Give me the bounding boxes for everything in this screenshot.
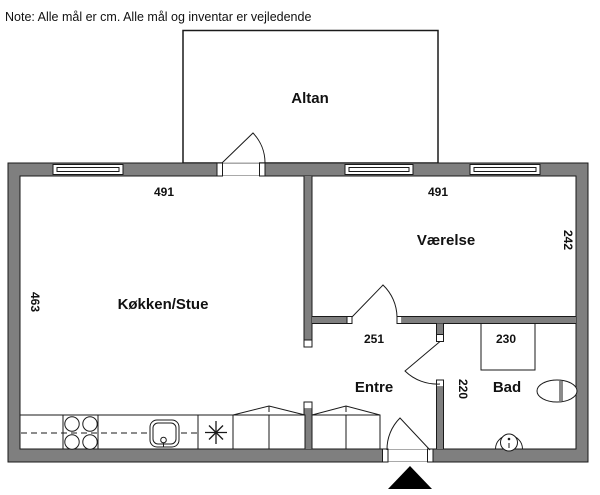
interior-wall-bath <box>437 324 444 450</box>
shower-icon <box>481 324 535 371</box>
entrance-arrow-icon <box>388 466 432 489</box>
interior-wall-horizontal <box>312 317 576 324</box>
room-label-vaerelse: Værelse <box>417 232 475 249</box>
door-jamb <box>260 163 266 176</box>
floor-plan-page: Note: Alle mål er cm. Alle mål og invent… <box>0 0 600 495</box>
door-jamb <box>437 380 444 387</box>
entrance-door <box>383 418 434 463</box>
interior-wall-vertical <box>304 176 312 449</box>
dim-vaerelse-width: 491 <box>428 185 448 199</box>
note-text: Note: Alle mål er cm. Alle mål og invent… <box>5 10 311 24</box>
washbasin-icon <box>496 434 523 451</box>
vaerelse-door-swing-arc <box>352 285 397 317</box>
kitchen-sink-icon <box>150 420 179 447</box>
dim-kokken-depth: 463 <box>28 292 42 312</box>
bad-door-swing-arc <box>405 342 440 385</box>
kitchen-counter <box>20 415 233 449</box>
room-label-entre: Entre <box>355 379 393 396</box>
door-jamb <box>437 335 444 342</box>
door-swing-arc <box>387 418 430 450</box>
dim-kokken-width: 491 <box>154 185 174 199</box>
room-label-altan: Altan <box>291 90 329 107</box>
wall-bottom <box>8 449 588 462</box>
door-jamb <box>397 317 402 324</box>
door-jamb <box>428 449 434 462</box>
door-jamb <box>304 340 312 347</box>
dim-bad-depth: 220 <box>456 379 470 399</box>
toilet-icon <box>537 380 577 402</box>
window-vaerelse-1 <box>345 165 413 175</box>
room-label-kokken-stue: Køkken/Stue <box>118 296 209 313</box>
door-jamb <box>383 449 389 462</box>
door-jamb <box>217 163 223 176</box>
floor-plan-drawing: Note: Alle mål er cm. Alle mål og invent… <box>0 0 600 495</box>
window-vaerelse-2 <box>470 165 540 175</box>
door-jamb <box>347 317 352 324</box>
door-jamb <box>304 402 312 409</box>
wardrobe-cabinet-icon <box>233 406 305 449</box>
wall-right <box>576 163 588 462</box>
wall-inner-outline <box>20 176 576 449</box>
dim-entre-width: 251 <box>364 332 384 346</box>
room-label-bad: Bad <box>493 379 521 396</box>
balcony: Altan <box>183 31 438 164</box>
wall-left <box>8 163 20 462</box>
dim-vaerelse-depth: 242 <box>561 230 575 250</box>
dim-bad-width: 230 <box>496 332 516 346</box>
wardrobe-cabinet-icon <box>312 406 380 449</box>
window-kokken <box>53 165 123 175</box>
